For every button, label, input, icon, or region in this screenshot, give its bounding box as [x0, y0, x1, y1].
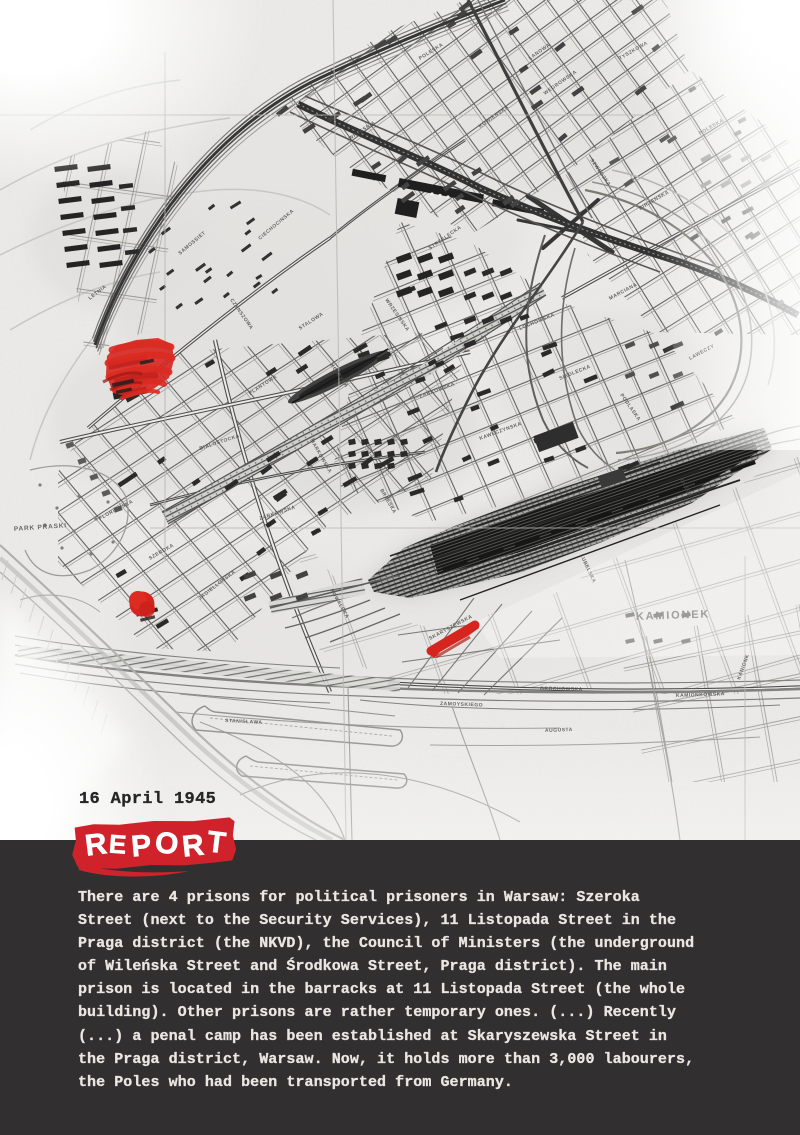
- svg-text:P: P: [130, 829, 153, 864]
- svg-text:R: R: [181, 829, 206, 864]
- svg-text:GROCHOWSKA: GROCHOWSKA: [540, 686, 583, 693]
- svg-text:R: R: [83, 827, 109, 862]
- svg-text:O: O: [153, 826, 180, 861]
- svg-text:E: E: [108, 829, 127, 860]
